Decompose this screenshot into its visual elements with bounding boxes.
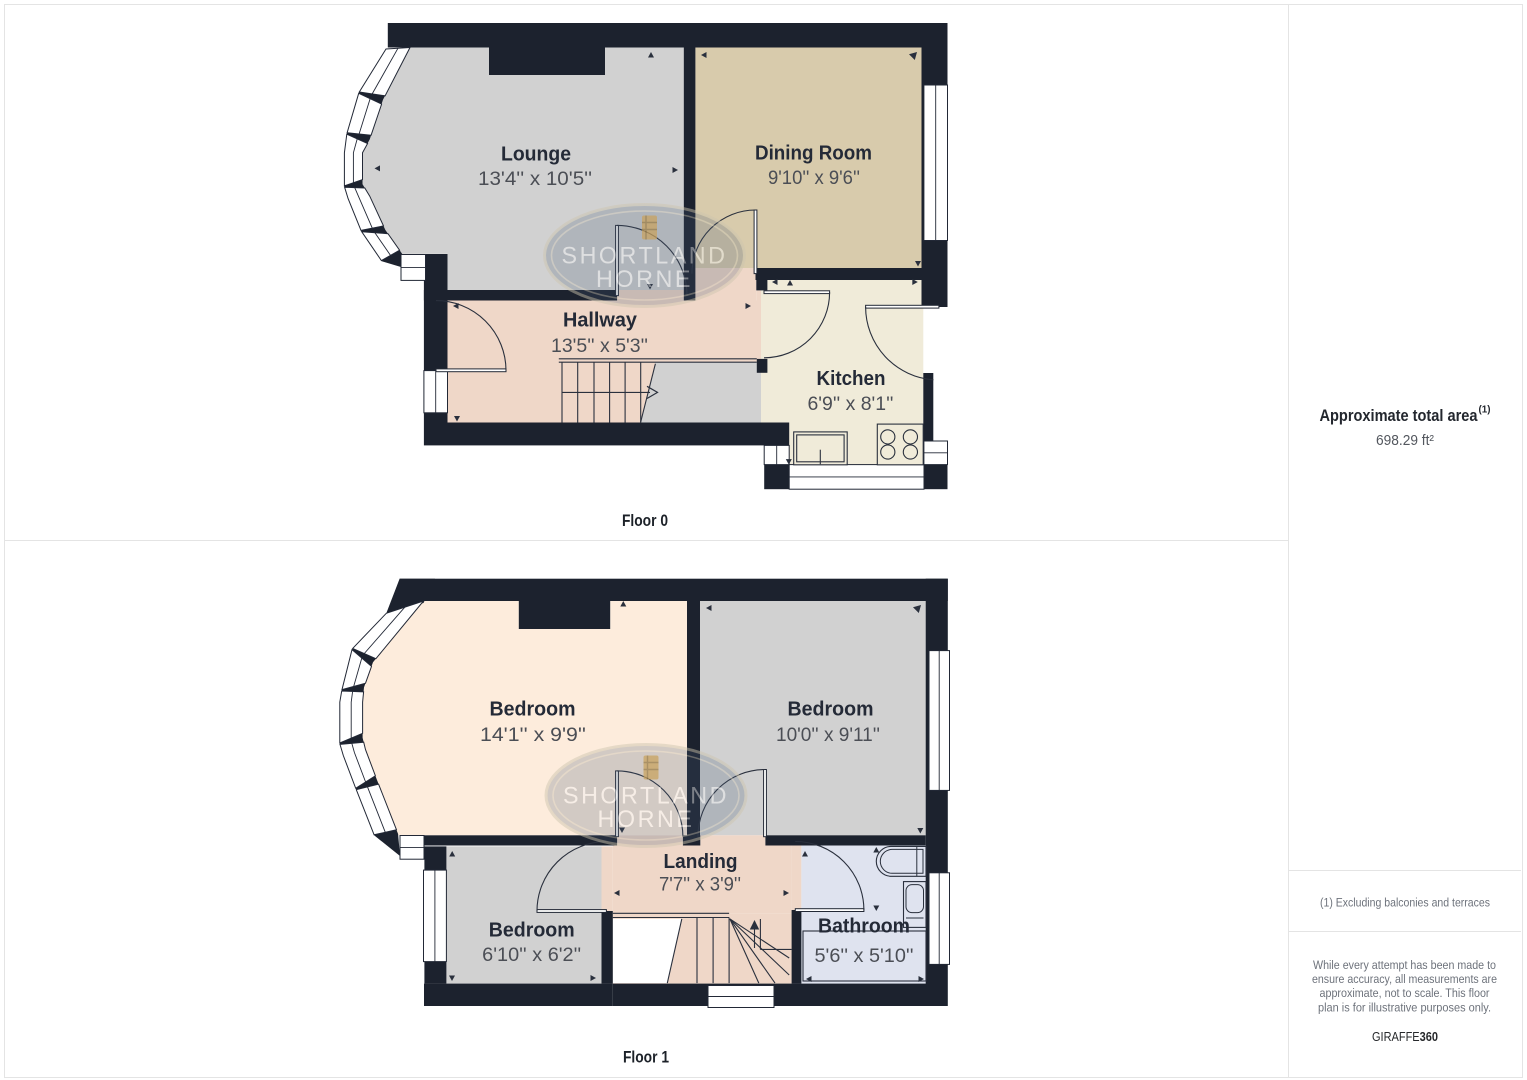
svg-text:9'10'' x 9'6'': 9'10'' x 9'6''	[768, 168, 860, 189]
svg-text:(1): (1)	[1479, 405, 1491, 416]
svg-text:6'9'' x 8'1'': 6'9'' x 8'1''	[808, 394, 894, 415]
svg-text:Bedroom: Bedroom	[490, 698, 576, 721]
svg-text:Floor 0: Floor 0	[622, 512, 668, 530]
svg-text:(1) Excluding balconies and te: (1) Excluding balconies and terraces	[1320, 895, 1490, 909]
svg-text:Floor 1: Floor 1	[623, 1049, 669, 1067]
svg-text:7'7'' x 3'9'': 7'7'' x 3'9''	[659, 875, 741, 896]
svg-text:Dining Room: Dining Room	[755, 142, 872, 165]
svg-text:GIRAFFE360: GIRAFFE360	[1372, 1029, 1438, 1044]
svg-text:6'10'' x 6'2'': 6'10'' x 6'2''	[482, 945, 581, 966]
svg-text:Kitchen: Kitchen	[817, 367, 886, 390]
svg-text:Approximate total area: Approximate total area	[1320, 406, 1479, 425]
svg-text:ensure accuracy, all measureme: ensure accuracy, all measurements are	[1312, 972, 1497, 986]
svg-text:HORNE: HORNE	[598, 806, 695, 833]
svg-text:5'6'' x 5'10'': 5'6'' x 5'10''	[815, 946, 914, 967]
svg-text:698.29 ft²: 698.29 ft²	[1376, 433, 1434, 449]
svg-text:Bathroom: Bathroom	[818, 915, 910, 938]
svg-text:HORNE: HORNE	[596, 266, 693, 293]
svg-text:Hallway: Hallway	[563, 309, 638, 332]
svg-text:approximate, not to scale. Thi: approximate, not to scale. This floor	[1320, 986, 1490, 1000]
svg-text:plan is for illustrative purpo: plan is for illustrative purposes only.	[1318, 1001, 1491, 1015]
svg-text:Bedroom: Bedroom	[489, 919, 575, 942]
svg-text:10'0'' x 9'11'': 10'0'' x 9'11''	[776, 725, 880, 746]
svg-text:Lounge: Lounge	[501, 143, 571, 166]
svg-text:13'4'' x 10'5'': 13'4'' x 10'5''	[478, 169, 592, 190]
svg-text:While every attempt has been m: While every attempt has been made to	[1313, 958, 1496, 972]
svg-text:Bedroom: Bedroom	[788, 698, 874, 721]
svg-text:13'5'' x 5'3'': 13'5'' x 5'3''	[551, 336, 648, 357]
svg-text:Landing: Landing	[664, 850, 738, 873]
svg-text:14'1'' x 9'9'': 14'1'' x 9'9''	[480, 725, 586, 746]
